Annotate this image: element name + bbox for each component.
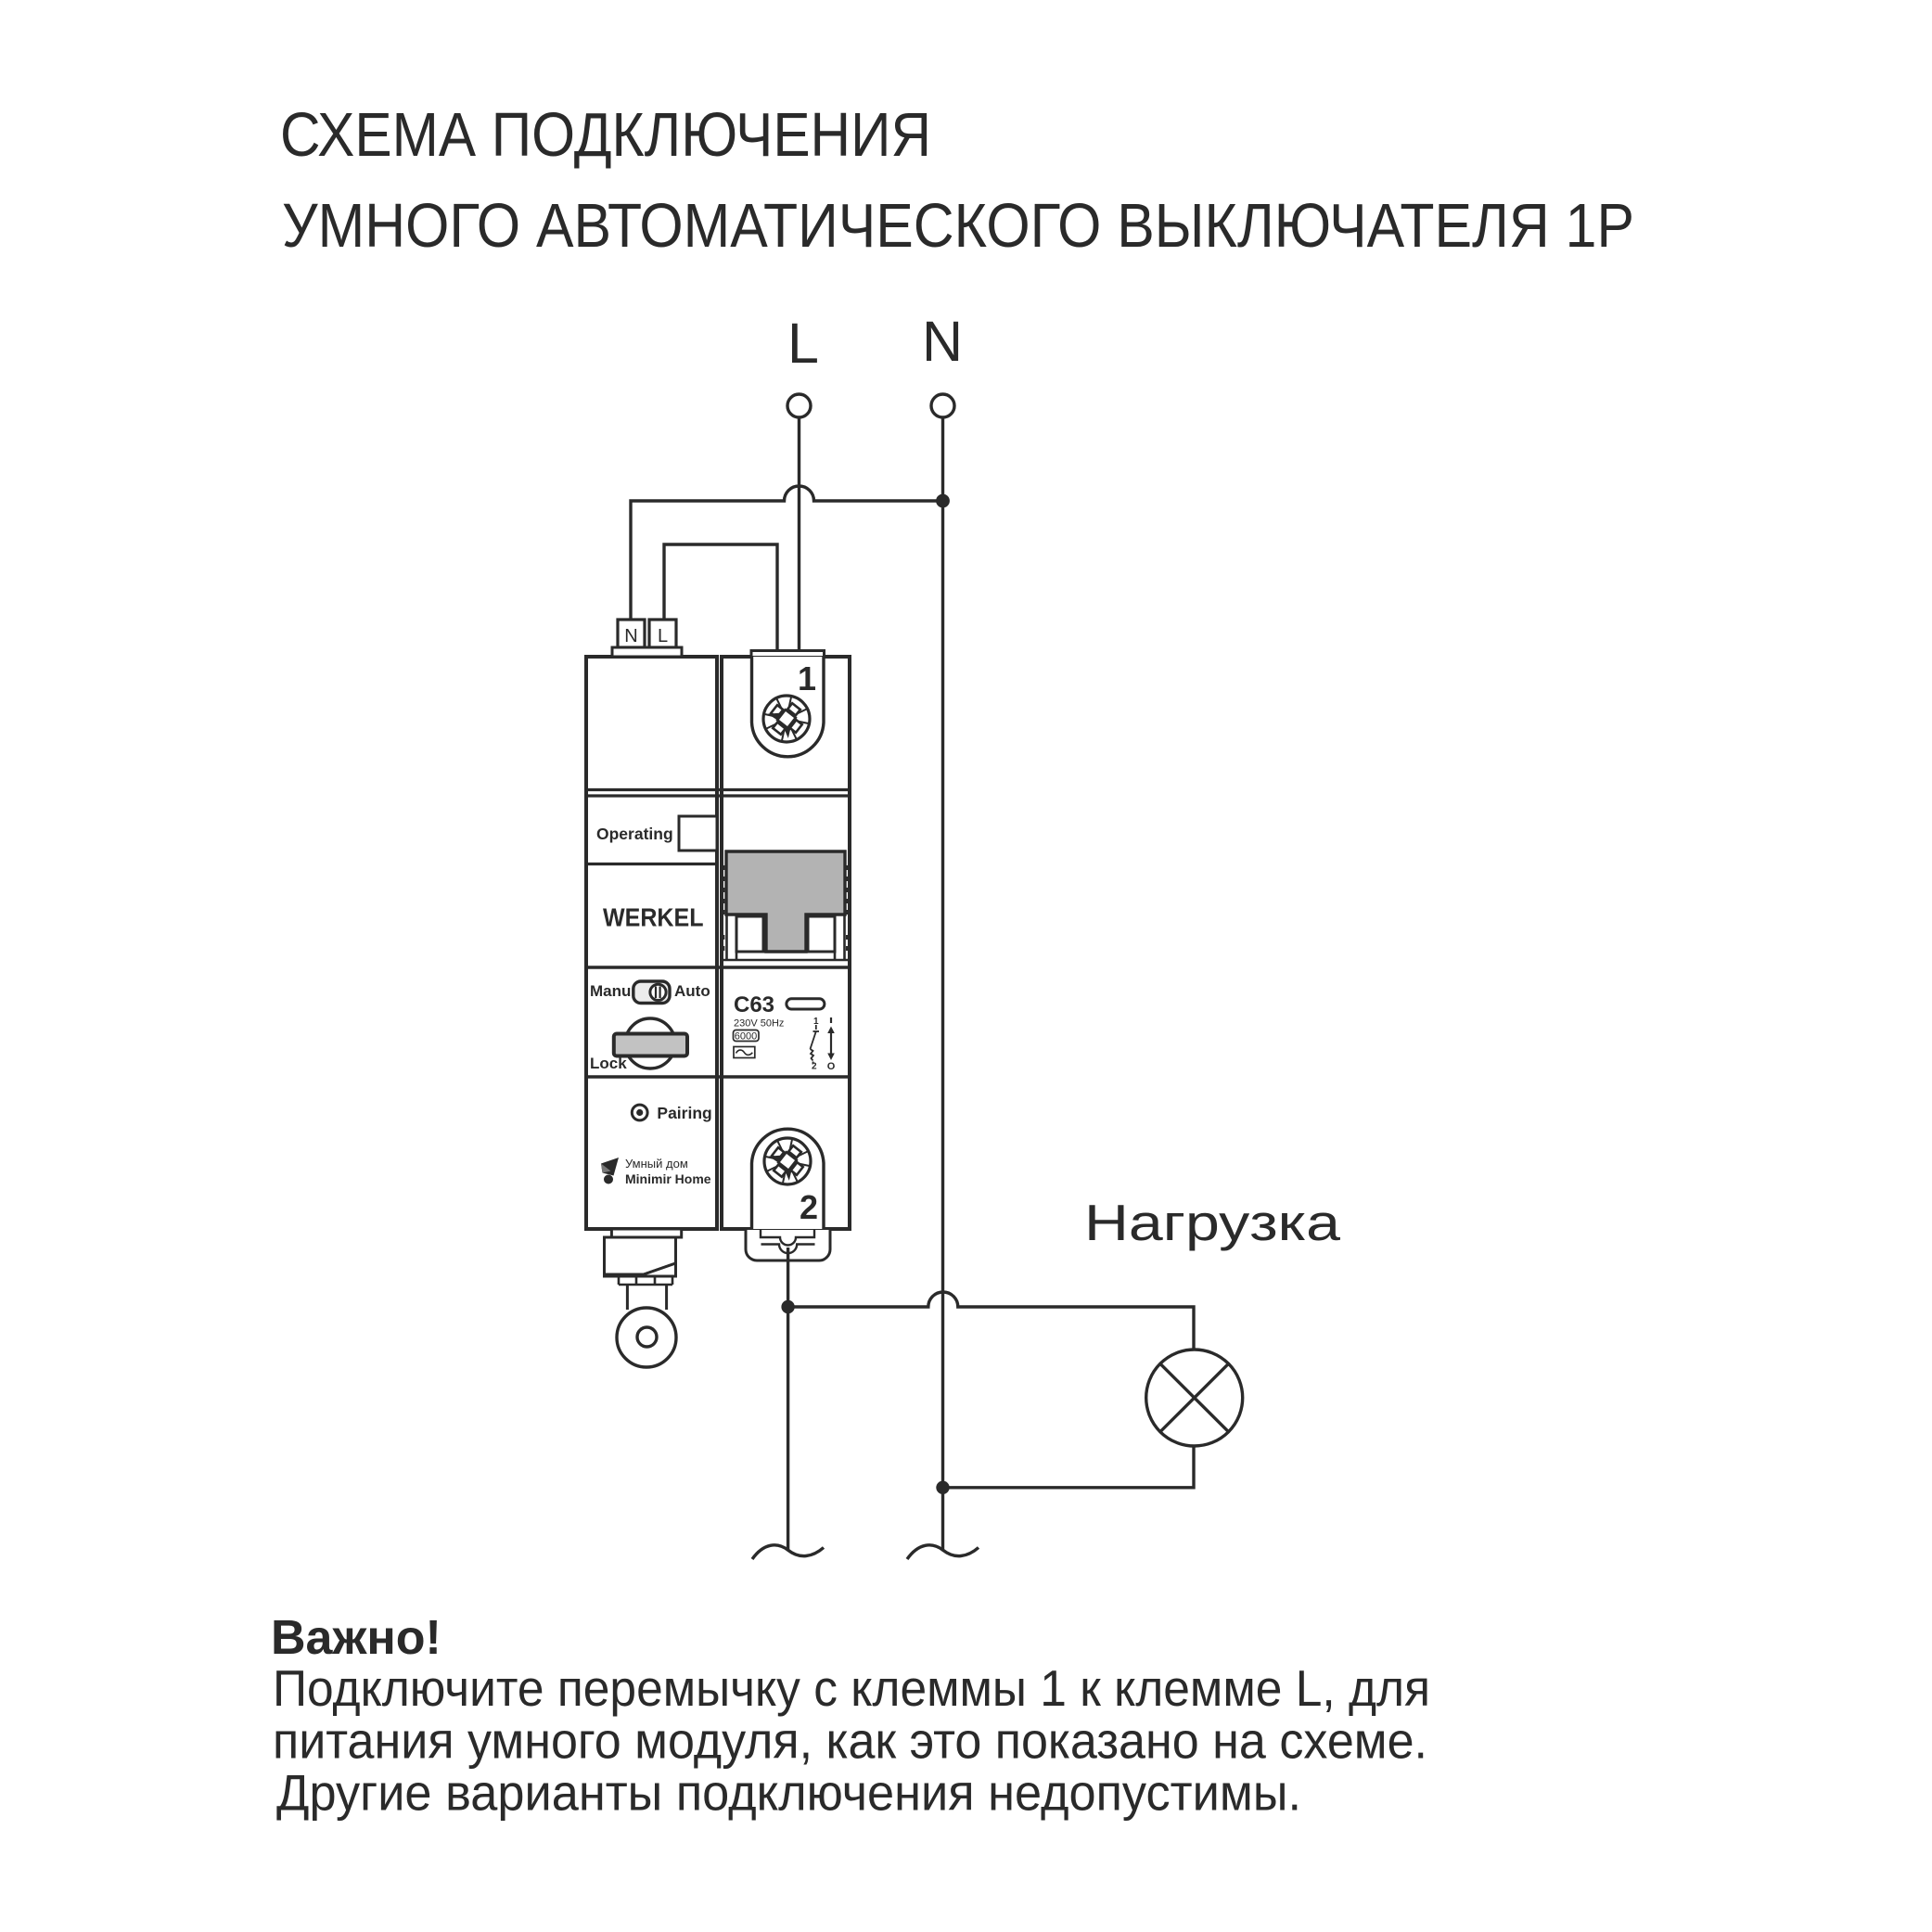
svg-text:1: 1 xyxy=(798,659,816,697)
svg-text:Важно!: Важно! xyxy=(271,1611,441,1665)
svg-text:Умный дом: Умный дом xyxy=(625,1157,688,1171)
svg-text:Другие варианты подключения не: Другие варианты подключения недопустимы. xyxy=(276,1764,1301,1822)
svg-text:СХЕМА ПОДКЛЮЧЕНИЯ: СХЕМА ПОДКЛЮЧЕНИЯ xyxy=(280,100,931,170)
svg-text:Подключите перемычку с клеммы: Подключите перемычку с клеммы 1 к клемме… xyxy=(273,1659,1430,1717)
svg-text:N: N xyxy=(922,310,963,373)
svg-text:УМНОГО АВТОМАТИЧЕСКОГО ВЫКЛЮЧА: УМНОГО АВТОМАТИЧЕСКОГО ВЫКЛЮЧАТЕЛЯ 1Р xyxy=(282,191,1634,261)
svg-text:L: L xyxy=(658,626,668,646)
svg-text:Manu: Manu xyxy=(590,982,631,1000)
svg-text:6000: 6000 xyxy=(735,1031,757,1043)
svg-text:N: N xyxy=(624,626,637,646)
svg-text:C63: C63 xyxy=(734,992,774,1017)
svg-text:Lock: Lock xyxy=(590,1055,627,1072)
svg-text:Operating: Operating xyxy=(596,825,673,843)
svg-text:Нагрузка: Нагрузка xyxy=(1084,1194,1340,1251)
svg-text:2: 2 xyxy=(812,1062,817,1072)
svg-text:230V 50Hz: 230V 50Hz xyxy=(734,1018,784,1030)
svg-text:Pairing: Pairing xyxy=(657,1104,711,1122)
svg-text:Auto: Auto xyxy=(674,982,710,1000)
svg-text:Minimir Home: Minimir Home xyxy=(625,1171,711,1186)
svg-text:1: 1 xyxy=(813,1017,819,1027)
svg-text:WERKEL: WERKEL xyxy=(603,903,704,932)
svg-text:2: 2 xyxy=(800,1188,818,1226)
svg-text:питания умного модуля, как это: питания умного модуля, как это показано … xyxy=(273,1712,1427,1770)
svg-text:O: O xyxy=(827,1061,836,1072)
svg-text:L: L xyxy=(787,312,819,375)
